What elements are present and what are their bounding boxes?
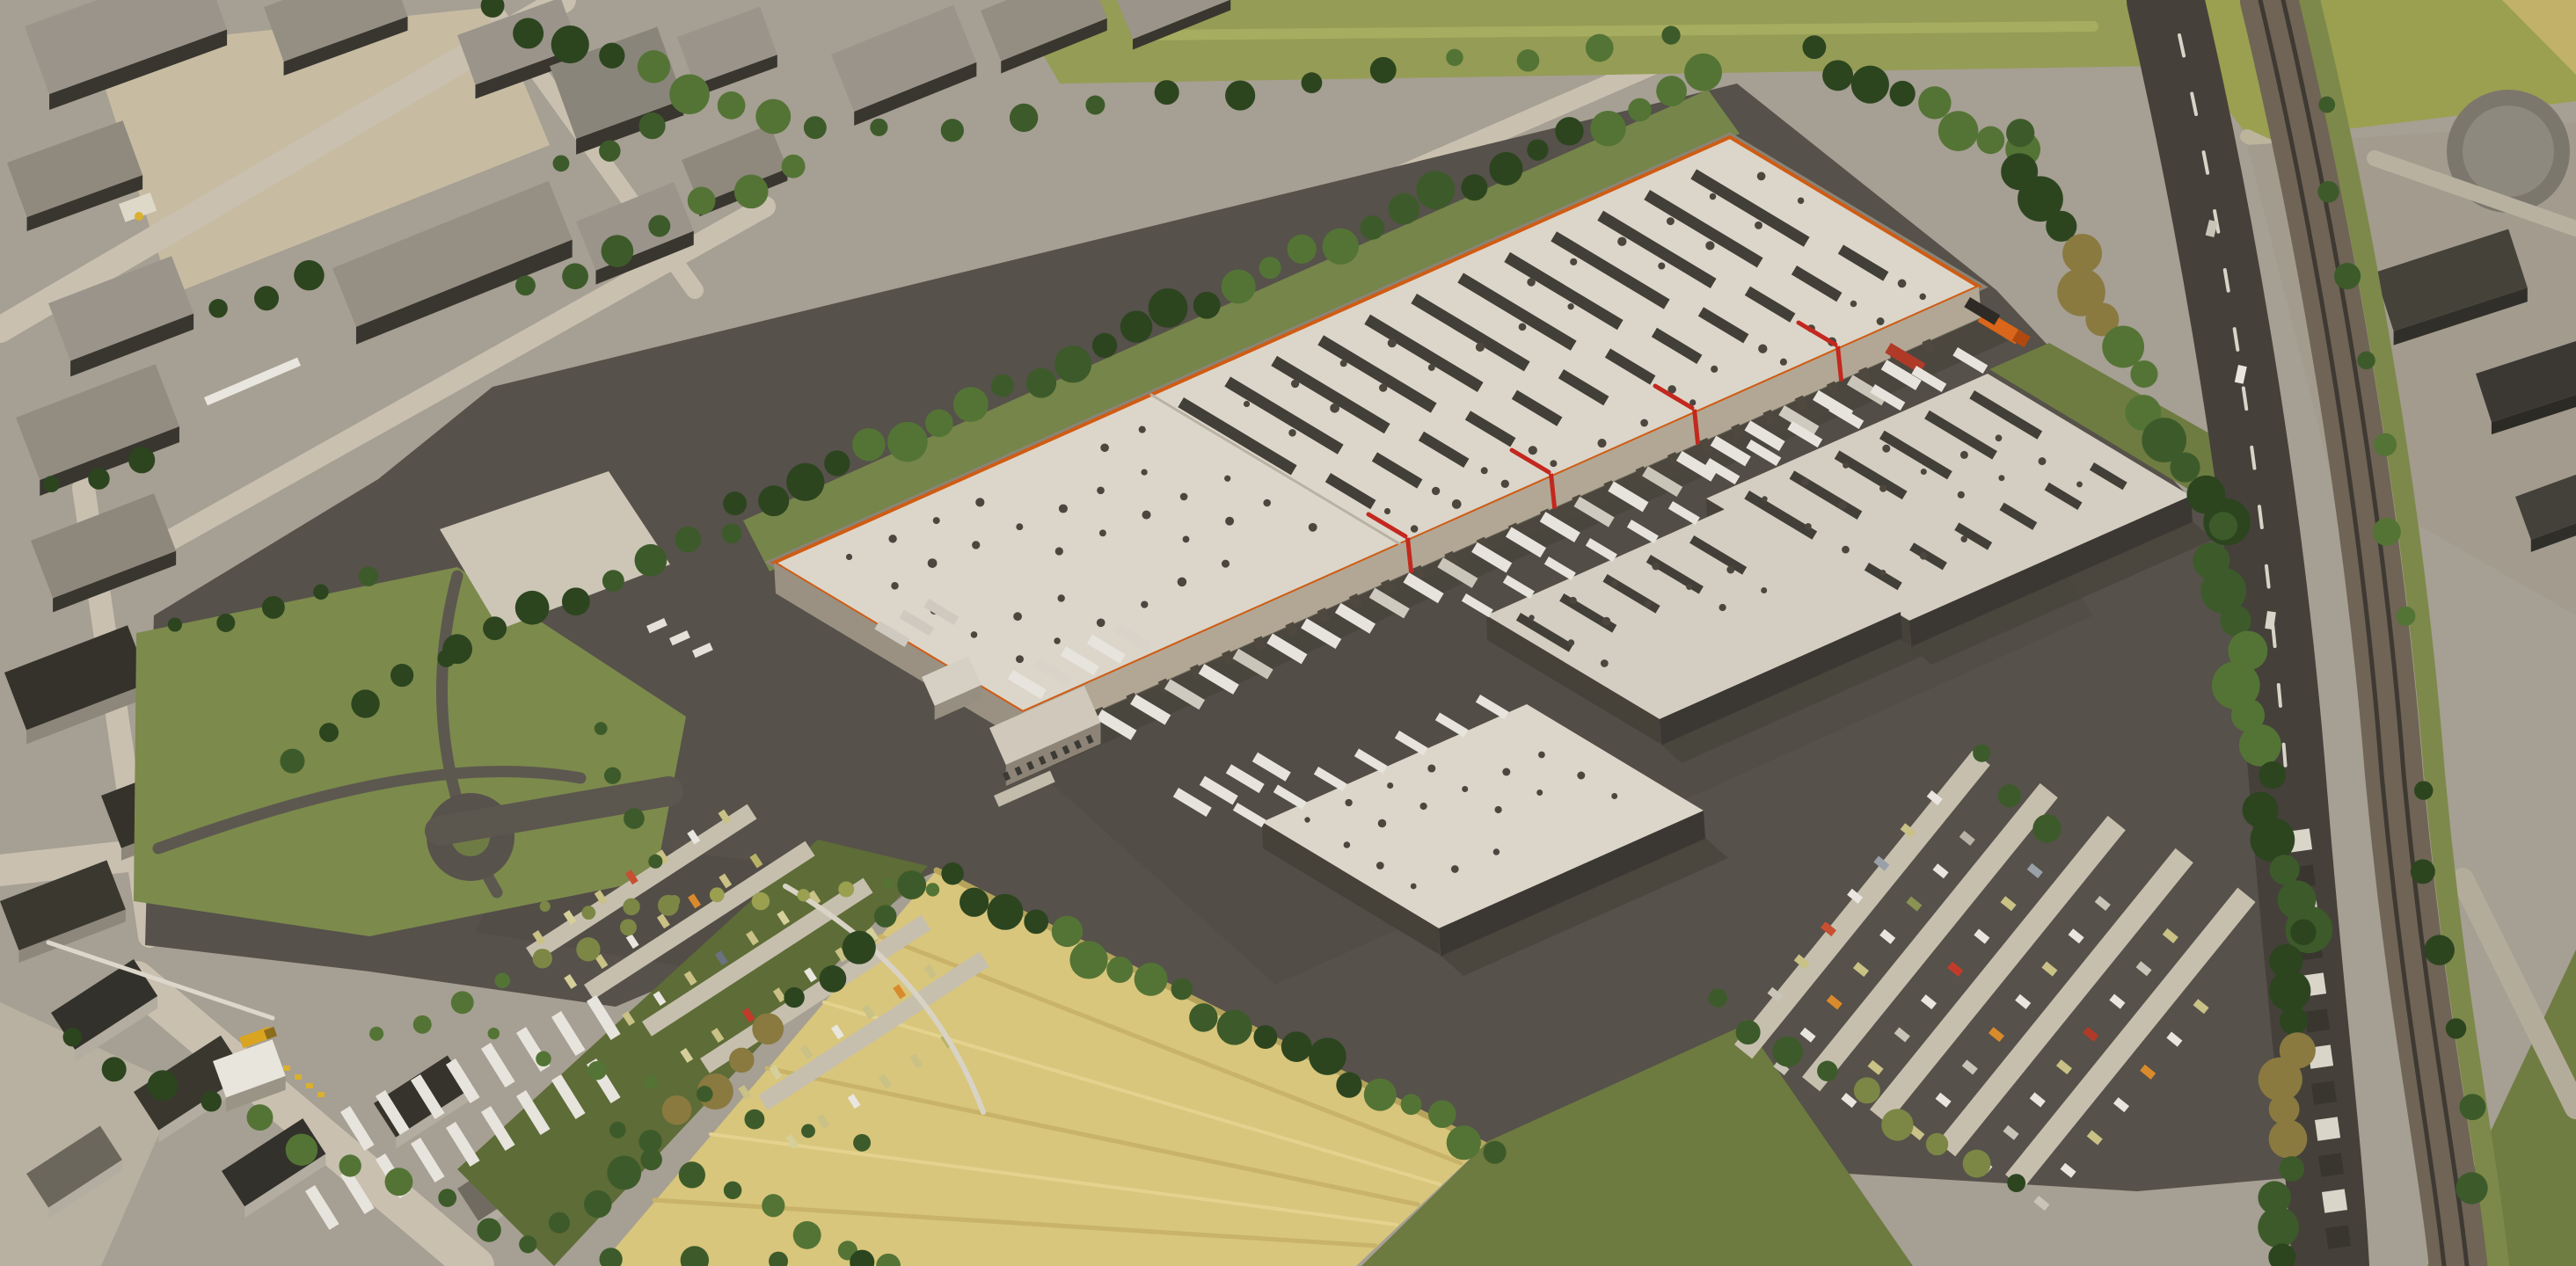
industrial-park-aerial-rendering <box>0 0 2576 1266</box>
tent-dot-yellow <box>135 212 143 221</box>
aerial-rendering-stage <box>0 0 2576 1266</box>
gas-tank-top <box>2463 105 2554 197</box>
